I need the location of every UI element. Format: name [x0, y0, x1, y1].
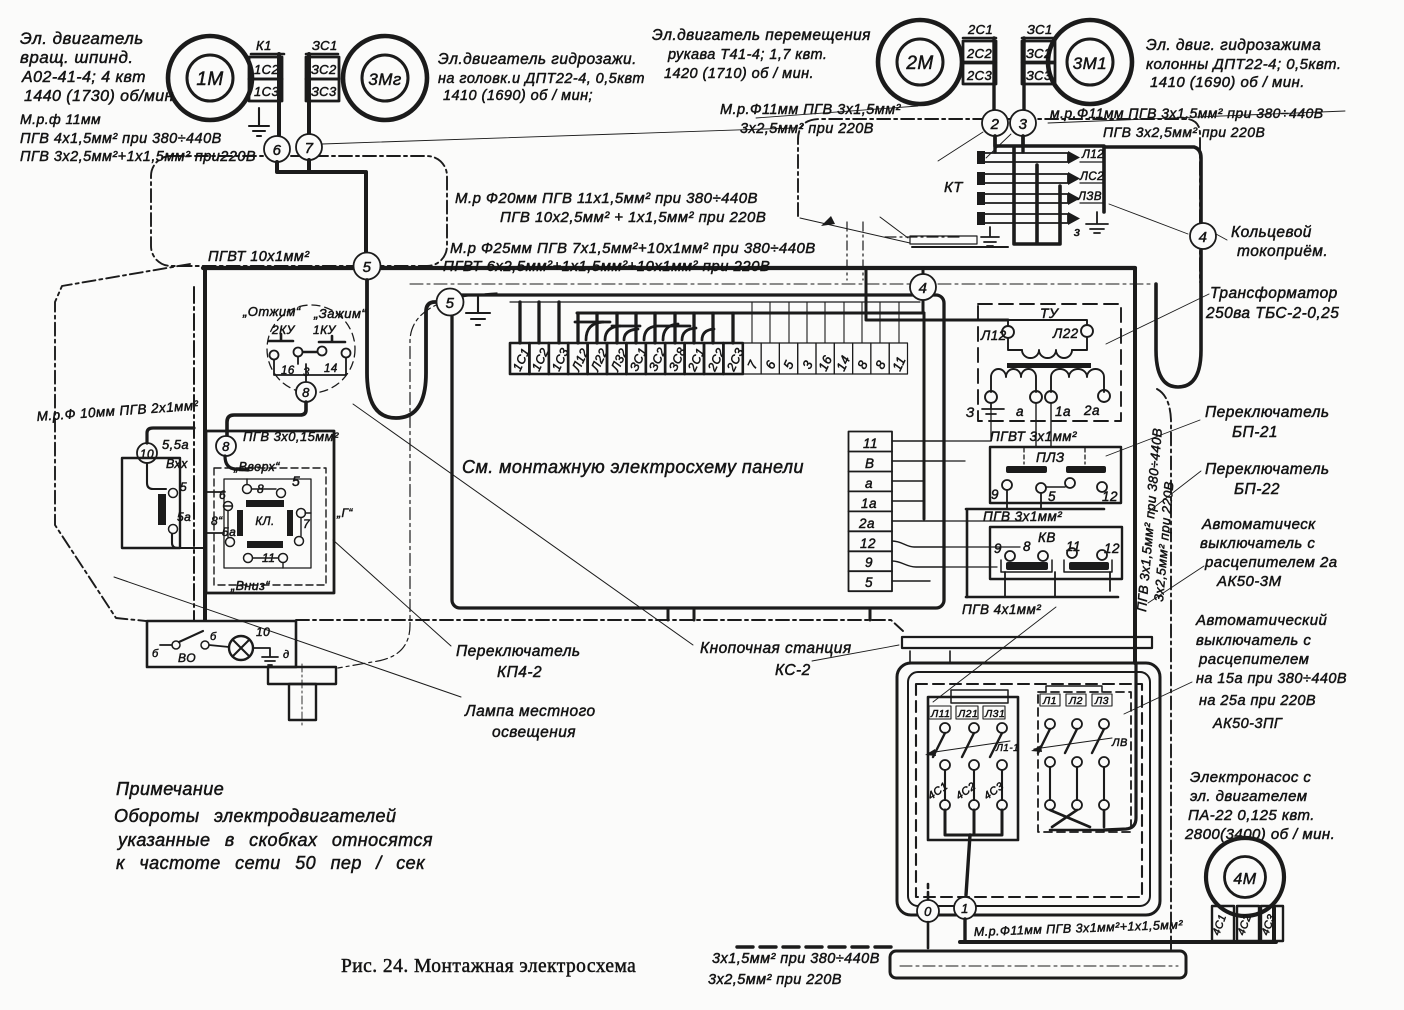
svg-text:ЗС3: ЗС3	[1026, 68, 1052, 83]
svg-text:5: 5	[1048, 489, 1056, 504]
svg-text:2а: 2а	[1083, 403, 1100, 418]
svg-text:6: 6	[273, 142, 282, 159]
svg-text:освещения: освещения	[492, 724, 576, 741]
svg-text:М.р.Ф11мм ПГВ 3х1,5мм²: М.р.Ф11мм ПГВ 3х1,5мм²	[720, 102, 902, 118]
svg-text:выключатель с: выключатель с	[1200, 535, 1315, 552]
svg-text:1а: 1а	[1055, 404, 1071, 419]
svg-text:на головк.и ДПТ22-4, 0,5квт: на головк.и ДПТ22-4, 0,5квт	[438, 71, 645, 87]
svg-text:ПГВТ 3х1мм²: ПГВТ 3х1мм²	[990, 429, 1077, 444]
svg-text:1440 (1730) об/мин: 1440 (1730) об/мин	[24, 88, 174, 105]
svg-text:Рис. 24. Монтажная электросх: Рис. 24. Монтажная электросхема	[341, 956, 636, 977]
svg-text:колонны ДПТ22-4; 0,5квт.: колонны ДПТ22-4; 0,5квт.	[1146, 56, 1341, 73]
svg-text:на 25а при 220В: на 25а при 220В	[1199, 693, 1316, 709]
svg-text:8: 8	[302, 385, 310, 400]
svg-text:Л1-1: Л1-1	[995, 743, 1019, 754]
svg-text:9: 9	[994, 541, 1002, 556]
svg-text:КЛ.: КЛ.	[255, 516, 274, 528]
svg-text:„Отжим“: „Отжим“	[242, 304, 301, 319]
svg-text:КВ: КВ	[1038, 530, 1056, 545]
svg-text:ЗС1: ЗС1	[312, 38, 338, 53]
svg-text:Лампа местного: Лампа местного	[464, 703, 596, 720]
svg-text:5: 5	[865, 575, 873, 590]
svg-text:3Мг: 3Мг	[368, 70, 401, 89]
svg-text:1КУ: 1КУ	[313, 323, 337, 337]
svg-text:КТ: КТ	[944, 179, 964, 196]
svg-text:Л12: Л12	[1081, 149, 1104, 161]
svg-text:10: 10	[256, 625, 270, 639]
svg-text:9: 9	[991, 487, 999, 502]
svg-text:АК50-3ПГ: АК50-3ПГ	[1212, 716, 1283, 732]
svg-text:1а: 1а	[861, 496, 877, 511]
svg-text:Переключатель: Переключатель	[1205, 461, 1330, 478]
svg-text:14: 14	[324, 363, 338, 375]
svg-text:„Зажим“: „Зажим“	[313, 306, 366, 321]
svg-text:Обороты электродвигателей: Обороты электродвигателей	[114, 806, 396, 826]
svg-text:к частоте сети 50 пер / сек: к частоте сети 50 пер / сек	[116, 853, 426, 873]
svg-text:Трансформатор: Трансформатор	[1210, 285, 1338, 302]
svg-text:З: З	[966, 405, 975, 420]
svg-text:2М: 2М	[905, 53, 933, 74]
svg-text:3х2,5мм² при 220В: 3х2,5мм² при 220В	[708, 972, 842, 988]
svg-text:Л22: Л22	[1052, 326, 1079, 341]
svg-text:ЗС2: ЗС2	[311, 62, 337, 77]
svg-text:3М1: 3М1	[1073, 54, 1107, 73]
svg-text:ПГВ 3х2,5мм² при 220В: ПГВ 3х2,5мм² при 220В	[1103, 124, 1265, 140]
svg-text:Л12: Л12	[980, 328, 1007, 343]
svg-text:ВО: ВО	[178, 651, 196, 665]
svg-text:м.р.Ф11мм ПГВ 3х1,5мм² при 380: м.р.Ф11мм ПГВ 3х1,5мм² при 380÷440В	[1050, 105, 1324, 121]
svg-text:1410 (1690) об / мин.: 1410 (1690) об / мин.	[1150, 74, 1305, 91]
svg-text:расцепителем: расцепителем	[1198, 651, 1309, 668]
svg-text:ТУ: ТУ	[1040, 305, 1060, 321]
svg-text:5: 5	[180, 480, 187, 494]
svg-text:М.р.ф 11мм: М.р.ф 11мм	[20, 111, 101, 127]
svg-text:7: 7	[303, 517, 311, 531]
svg-text:8: 8	[1023, 539, 1031, 554]
svg-text:ЛЗВ: ЛЗВ	[1077, 191, 1102, 203]
svg-text:1С3: 1С3	[254, 84, 280, 99]
svg-text:„Вверх“: „Вверх“	[233, 460, 280, 474]
svg-text:Переключатель: Переключатель	[456, 643, 581, 660]
svg-text:д: д	[283, 649, 290, 661]
svg-text:ПГВ 3х1мм²: ПГВ 3х1мм²	[983, 509, 1062, 524]
svg-text:вращ. шпинд.: вращ. шпинд.	[20, 48, 134, 67]
svg-text:АК50-3М: АК50-3М	[1216, 573, 1282, 590]
svg-text:5,5а: 5,5а	[162, 437, 189, 452]
svg-text:Л21: Л21	[957, 708, 978, 720]
svg-text:ПГВ 3х2,5мм²+1х1,5мм² при220В: ПГВ 3х2,5мм²+1х1,5мм² при220В	[20, 149, 256, 165]
svg-text:Автоматический: Автоматический	[1195, 612, 1328, 629]
svg-text:Эл. двиг. гидрозажима: Эл. двиг. гидрозажима	[1146, 37, 1321, 54]
svg-text:Л1: Л1	[1042, 695, 1057, 707]
svg-text:3х1,5мм² при 380÷440В: 3х1,5мм² при 380÷440В	[712, 951, 880, 967]
svg-text:11: 11	[863, 436, 878, 451]
svg-text:з: з	[1073, 224, 1081, 239]
svg-text:БП-22: БП-22	[1234, 481, 1280, 498]
svg-text:ПЛЗ: ПЛЗ	[1036, 450, 1065, 465]
svg-text:5: 5	[446, 295, 455, 312]
svg-text:4: 4	[1199, 229, 1208, 246]
svg-text:0: 0	[924, 904, 932, 919]
svg-text:ЛС2: ЛС2	[1079, 171, 1104, 183]
svg-text:ПГВТ 6х2,5мм²+1х1,5мм²+10х1мм²: ПГВТ 6х2,5мм²+1х1,5мм²+10х1мм² при 220В	[443, 258, 770, 275]
svg-text:5а: 5а	[177, 510, 191, 524]
svg-text:Эл.двигатель перемещения: Эл.двигатель перемещения	[652, 27, 871, 44]
svg-text:Эл. двигатель: Эл. двигатель	[20, 29, 144, 48]
svg-text:расцепителем 2а: расцепителем 2а	[1204, 554, 1338, 571]
svg-text:М.р Ф20мм ПГВ 11х1,5мм² при 3: М.р Ф20мм ПГВ 11х1,5мм² при 380÷440В	[455, 190, 758, 207]
svg-text:В: В	[865, 456, 874, 471]
svg-text:2С1: 2С1	[967, 22, 993, 37]
svg-text:4: 4	[919, 280, 928, 297]
svg-text:а: а	[1016, 404, 1024, 419]
svg-text:„Г“: „Г“	[336, 506, 353, 520]
svg-text:Автоматическ: Автоматическ	[1201, 516, 1316, 533]
svg-text:8: 8	[222, 439, 230, 454]
svg-text:б: б	[152, 648, 159, 660]
svg-text:Переключатель: Переключатель	[1205, 404, 1330, 421]
svg-text:на 15а при 380÷440В: на 15а при 380÷440В	[1196, 671, 1347, 687]
svg-text:токоприём.: токоприём.	[1237, 243, 1328, 260]
svg-text:Примечание: Примечание	[116, 779, 224, 799]
svg-text:4М: 4М	[1233, 871, 1256, 888]
svg-text:7: 7	[305, 140, 314, 157]
svg-text:12: 12	[1102, 489, 1118, 504]
svg-text:9: 9	[865, 555, 873, 570]
svg-text:Электронасос с: Электронасос с	[1190, 769, 1311, 786]
svg-text:2: 2	[990, 116, 1000, 133]
svg-text:ЗС2: ЗС2	[1026, 46, 1052, 61]
svg-text:См. монтажную электросхему п: См. монтажную электросхему панели	[462, 457, 804, 477]
svg-text:выключатель с: выключатель с	[1196, 632, 1311, 649]
svg-text:2КУ: 2КУ	[271, 323, 296, 337]
svg-text:ПА-22 0,125 квт.: ПА-22 0,125 квт.	[1188, 807, 1315, 824]
svg-text:250ва ТБС-2-0,25: 250ва ТБС-2-0,25	[1205, 305, 1339, 322]
svg-text:1420 (1710) об / мин.: 1420 (1710) об / мин.	[664, 66, 814, 82]
svg-text:1410 (1690) об / мин;: 1410 (1690) об / мин;	[443, 88, 593, 104]
svg-text:5а: 5а	[222, 525, 236, 539]
svg-text:2С3: 2С3	[966, 68, 993, 83]
svg-text:12: 12	[860, 536, 876, 551]
svg-text:КП4-2: КП4-2	[497, 664, 542, 681]
svg-text:ПГВ 4х1мм²: ПГВ 4х1мм²	[962, 602, 1041, 617]
svg-text:рукава Т41-4; 1,7 квт.: рукава Т41-4; 1,7 квт.	[667, 47, 827, 63]
svg-text:КС-2: КС-2	[775, 662, 811, 679]
svg-text:1М: 1М	[196, 69, 223, 90]
svg-text:Кольцевой: Кольцевой	[1231, 224, 1312, 241]
svg-text:Л11: Л11	[930, 708, 950, 720]
svg-text:5: 5	[292, 473, 300, 489]
svg-text:б: б	[210, 631, 217, 643]
svg-text:3х2,5мм² при 220В: 3х2,5мм² при 220В	[740, 121, 874, 137]
svg-text:Кнопочная станция: Кнопочная станция	[700, 640, 852, 657]
svg-text:Л2: Л2	[1068, 695, 1083, 707]
svg-text:ПГВ 4х1,5мм² при 380÷440В: ПГВ 4х1,5мм² при 380÷440В	[20, 131, 222, 147]
svg-text:5: 5	[363, 259, 372, 276]
svg-text:1: 1	[961, 901, 969, 916]
svg-text:ЛВ: ЛВ	[1111, 737, 1128, 749]
svg-text:К1: К1	[256, 38, 272, 53]
svg-text:3: 3	[1019, 116, 1028, 133]
svg-text:ЗС3: ЗС3	[311, 84, 337, 99]
svg-text:БП-21: БП-21	[1232, 424, 1278, 441]
svg-text:Л3: Л3	[1094, 695, 1109, 707]
svg-text:М.р Ф25мм ПГВ 7х1,5мм²+10х1мм²: М.р Ф25мм ПГВ 7х1,5мм²+10х1мм² при 380÷4…	[450, 240, 816, 257]
svg-text:Л31: Л31	[984, 708, 1005, 720]
svg-text:А02-41-4; 4 квт: А02-41-4; 4 квт	[21, 69, 146, 86]
svg-text:ПГВ 10х2,5мм² + 1х1,5мм² при: ПГВ 10х2,5мм² + 1х1,5мм² при 220В	[500, 209, 766, 226]
svg-text:ЗС1: ЗС1	[1027, 22, 1053, 37]
svg-text:а: а	[865, 476, 873, 491]
svg-text:указанные в скобках относятся: указанные в скобках относятся	[116, 830, 433, 850]
svg-text:Эл.двигатель гидрозажи.: Эл.двигатель гидрозажи.	[438, 51, 637, 68]
svg-text:„Вниз“: „Вниз“	[230, 579, 270, 593]
svg-text:2С2: 2С2	[966, 46, 993, 61]
svg-text:2а: 2а	[858, 516, 875, 531]
svg-text:11: 11	[1066, 539, 1081, 554]
svg-text:6: 6	[219, 488, 226, 502]
svg-text:ПГВТ 10х1мм²: ПГВТ 10х1мм²	[208, 249, 310, 265]
svg-text:1С2: 1С2	[254, 62, 280, 77]
svg-text:эл. двигателем: эл. двигателем	[1190, 788, 1307, 805]
